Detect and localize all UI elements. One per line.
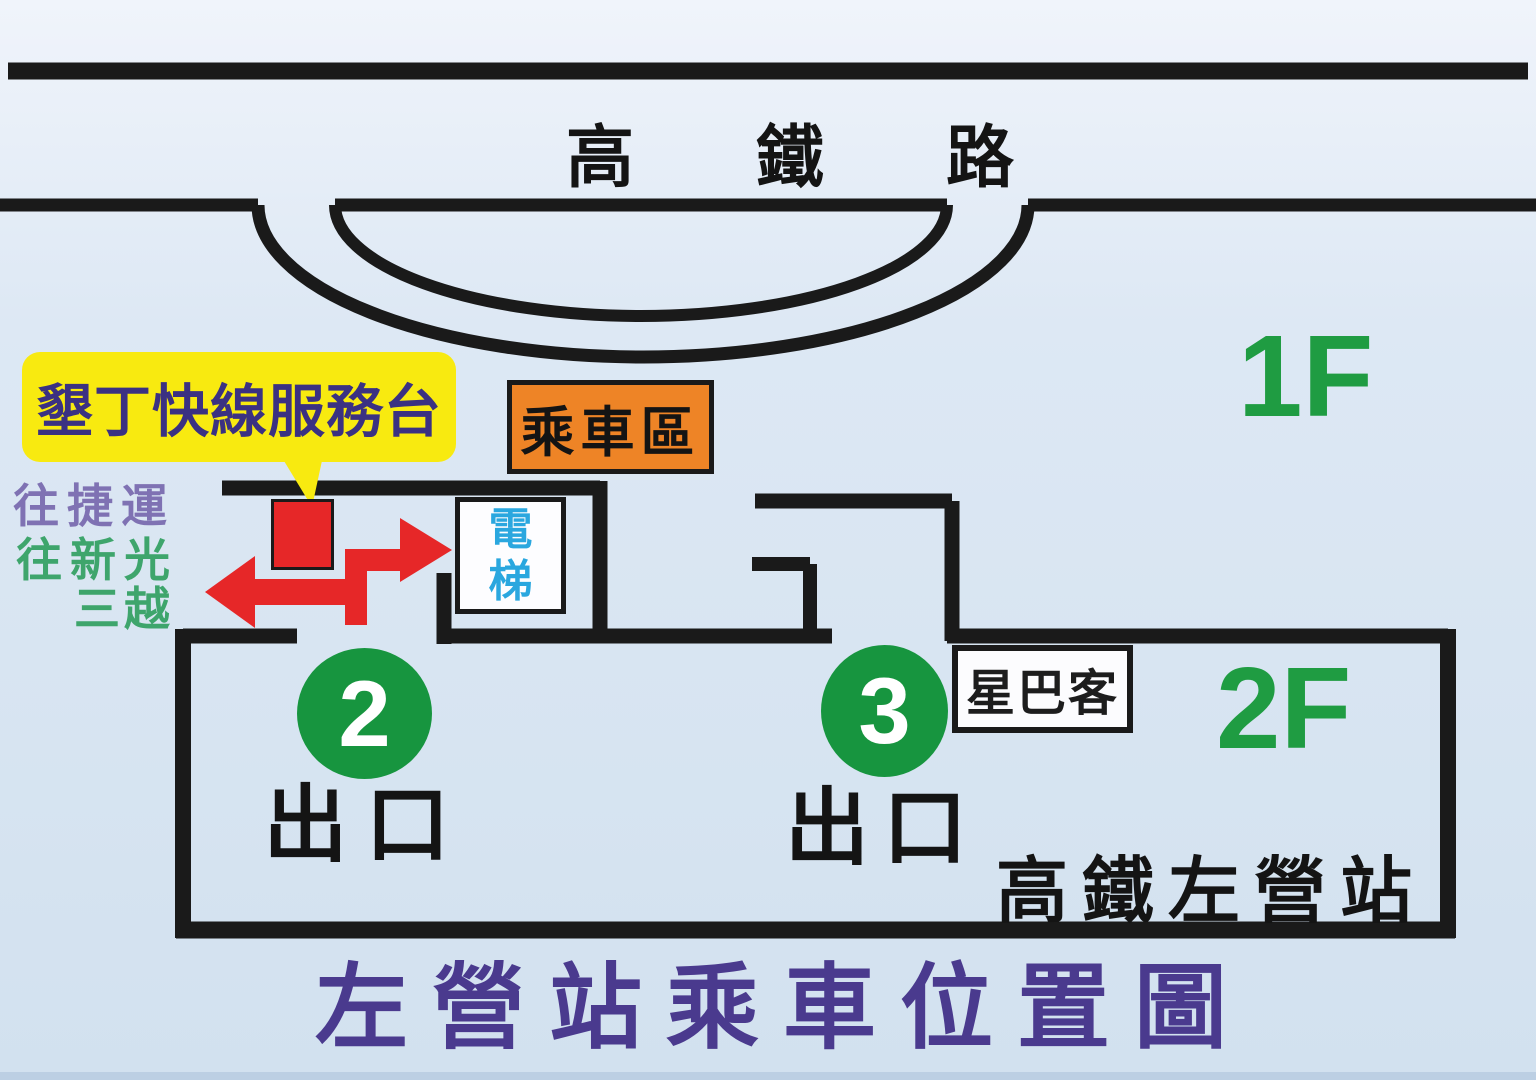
exit-2-badge: 2	[297, 648, 432, 779]
service-desk-callout: 墾丁快線服務台	[22, 352, 456, 462]
exit-3-number: 3	[858, 664, 910, 758]
boarding-area-box: 乘車區	[507, 380, 714, 474]
starbucks-label: 星巴客	[966, 654, 1119, 725]
exit-2-label: 出口	[263, 783, 468, 867]
arrow-right-path	[356, 560, 402, 625]
exit-2-number: 2	[338, 667, 390, 761]
floor-2f-label: 2F	[1216, 650, 1351, 766]
service-desk-label: 墾丁快線服務台	[36, 366, 442, 448]
starbucks-box: 星巴客	[952, 645, 1133, 733]
arrow-left-head	[205, 556, 255, 628]
exit-3-label: 出口	[783, 786, 983, 870]
service-desk-marker	[271, 499, 334, 570]
elevator-box: 電 梯	[455, 497, 566, 614]
exit-3-badge: 3	[821, 645, 948, 777]
floor-1f-label: 1F	[1238, 318, 1373, 434]
driveway-outer-arc	[258, 205, 1028, 357]
elevator-label-line2: 梯	[489, 556, 533, 608]
road-name-label: 高鐵路	[566, 102, 1136, 201]
bottom-edge-strip	[0, 1072, 1536, 1080]
direction-to-mrt: 往捷運	[13, 483, 175, 529]
station-map: 高鐵路 1F 2F 墾丁快線服務台 乘車區 往捷運 往新光 三越 電 梯 2 出…	[0, 0, 1536, 1080]
direction-to-shinkong-line2: 三越	[74, 586, 174, 632]
arrow-right-head	[400, 518, 452, 582]
elevator-label-line1: 電	[489, 504, 533, 556]
station-name-label: 高鐵左營站	[996, 832, 1426, 937]
driveway-inner-arc	[335, 205, 947, 316]
boarding-area-label: 乘車區	[521, 388, 701, 467]
map-title: 左營站乘車位置圖	[315, 962, 1251, 1055]
direction-to-shinkong-line1: 往新光	[16, 537, 178, 583]
